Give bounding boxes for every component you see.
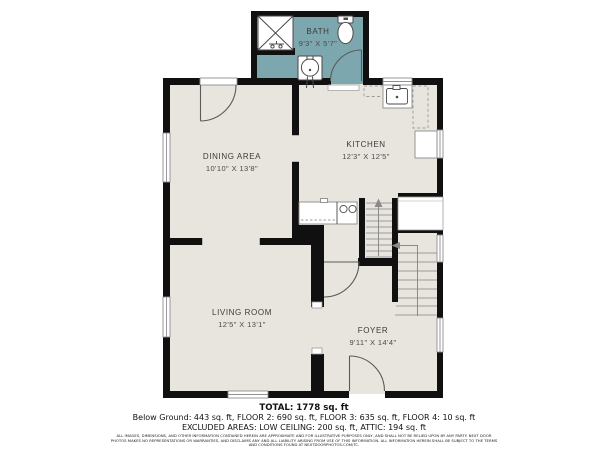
room-label-foyer: FOYER 9'11" X 14'4" <box>349 325 396 349</box>
floorplan-drawing <box>0 0 608 456</box>
wall <box>437 78 443 130</box>
wall <box>359 198 365 266</box>
wall <box>292 225 324 245</box>
range-stove-icon <box>299 199 357 225</box>
room-label-dining: DINING AREA 10'10" X 13'8" <box>203 151 261 175</box>
wall <box>163 391 228 398</box>
room-dims: 9'11" X 14'4" <box>349 337 396 349</box>
wall <box>311 354 324 391</box>
area-summary: TOTAL: 1778 sq. ft Below Ground: 443 sq.… <box>0 403 608 448</box>
excluded-areas-text: EXCLUDED AREAS: LOW CEILING: 200 sq. ft,… <box>0 423 608 433</box>
room-name: LIVING ROOM <box>212 307 272 319</box>
window-kitchen-right <box>437 130 443 158</box>
kitchen-sink-icon <box>383 85 412 108</box>
room-name: BATH <box>299 26 337 38</box>
window-stairs-right <box>437 235 443 262</box>
room-label-kitchen: KITCHEN 12'3" X 12'5" <box>342 139 390 163</box>
wall <box>437 262 443 318</box>
window-kitchen-top <box>383 78 412 85</box>
total-area-text: TOTAL: 1778 sq. ft <box>0 403 608 413</box>
room-label-bath: BATH 9'3" X 5'7" <box>299 26 337 50</box>
window-living-bottom <box>228 391 268 398</box>
wall <box>385 391 443 398</box>
wall <box>363 11 369 81</box>
wall <box>292 85 299 135</box>
window-dining-left <box>163 133 170 182</box>
room-dims: 10'10" X 13'8" <box>203 163 261 175</box>
wall <box>163 337 170 398</box>
window-living-left <box>163 297 170 337</box>
wall <box>260 238 294 245</box>
room-name: DINING AREA <box>203 151 261 163</box>
window-foyer-right <box>437 318 443 352</box>
stairs-landing <box>398 197 443 230</box>
room-dims: 12'5" X 13'1" <box>212 319 272 331</box>
room-label-living: LIVING ROOM 12'5" X 13'1" <box>212 307 272 331</box>
wall <box>163 78 170 133</box>
wall <box>311 244 324 307</box>
room-name: FOYER <box>349 325 396 337</box>
disclaimer-text: ALL IMAGES, DIMENSIONS, AND OTHER INFORM… <box>109 434 499 448</box>
wall <box>237 78 257 85</box>
floorplan-page: BATH 9'3" X 5'7" DINING AREA 10'10" X 13… <box>0 0 608 456</box>
wall <box>363 78 383 85</box>
floor-breakdown-text: Below Ground: 443 sq. ft, FLOOR 2: 690 s… <box>0 413 608 423</box>
wall <box>268 391 349 398</box>
wall <box>168 238 202 245</box>
wall <box>398 193 443 197</box>
room-name: KITCHEN <box>342 139 390 151</box>
shower-icon <box>258 16 293 50</box>
room-dims: 9'3" X 5'7" <box>299 38 337 50</box>
room-dims: 12'3" X 12'5" <box>342 151 390 163</box>
refrigerator-icon <box>415 131 437 158</box>
wall <box>392 198 398 302</box>
toilet-icon <box>338 16 353 44</box>
